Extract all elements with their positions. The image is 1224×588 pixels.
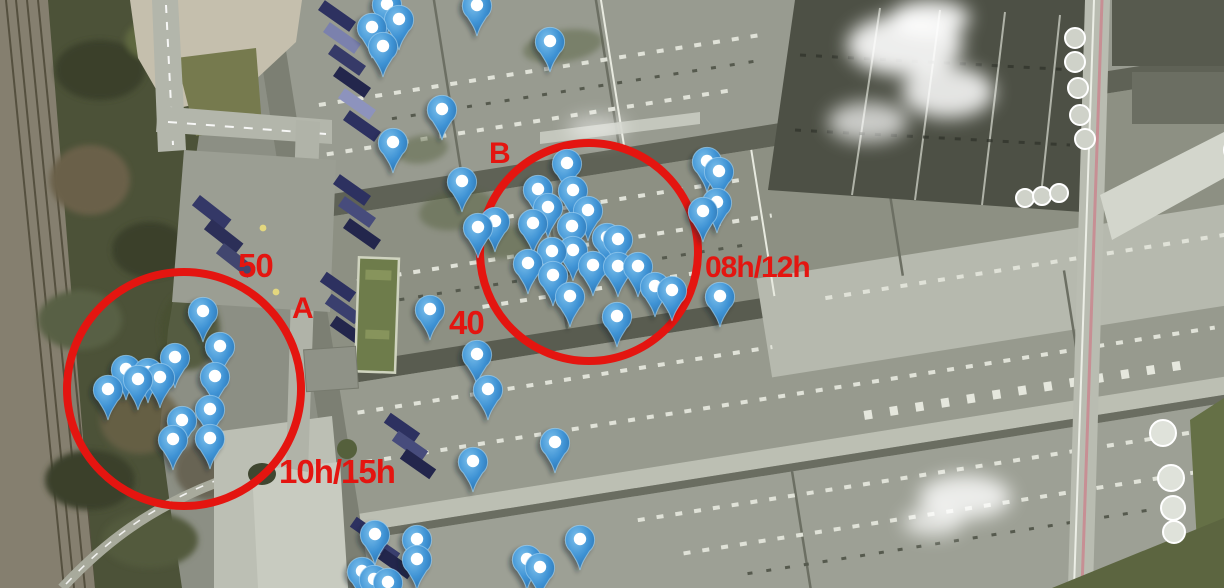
annotation-label-shift-center: 08h/12h (705, 251, 810, 284)
cluster-circles (67, 143, 698, 506)
annotation-label-zone-a: A (292, 292, 313, 325)
annotation-label-count-left: 50 (238, 247, 273, 284)
map-pins (93, 0, 734, 588)
annotation-label-count-center: 40 (449, 304, 484, 341)
annotated-satellite-map: 50AB4008h/12h10h/15h (0, 0, 1224, 588)
annotation-label-shift-left: 10h/15h (279, 453, 395, 490)
map-pin[interactable] (535, 27, 564, 72)
annotation-label-zone-b: B (489, 137, 510, 170)
map-pin[interactable] (427, 95, 456, 140)
map-pin[interactable] (602, 302, 631, 347)
map-pin[interactable] (402, 545, 431, 588)
map-pin[interactable] (540, 428, 569, 473)
map-pin[interactable] (158, 425, 187, 470)
map-pin[interactable] (93, 375, 122, 420)
map-pin[interactable] (458, 447, 487, 492)
map-pin[interactable] (513, 249, 542, 294)
annotation-overlay: 50AB4008h/12h10h/15h (0, 0, 1224, 588)
map-pin[interactable] (565, 525, 594, 570)
map-pin[interactable] (415, 295, 444, 340)
map-pin[interactable] (473, 375, 502, 420)
map-pin[interactable] (368, 32, 397, 77)
map-pin[interactable] (195, 424, 224, 469)
map-pin[interactable] (123, 365, 152, 410)
map-pin[interactable] (378, 128, 407, 173)
map-pin[interactable] (555, 282, 584, 327)
map-pin[interactable] (705, 282, 734, 327)
map-pin[interactable] (463, 213, 492, 258)
map-pin[interactable] (447, 167, 476, 212)
map-pin[interactable] (462, 0, 491, 36)
